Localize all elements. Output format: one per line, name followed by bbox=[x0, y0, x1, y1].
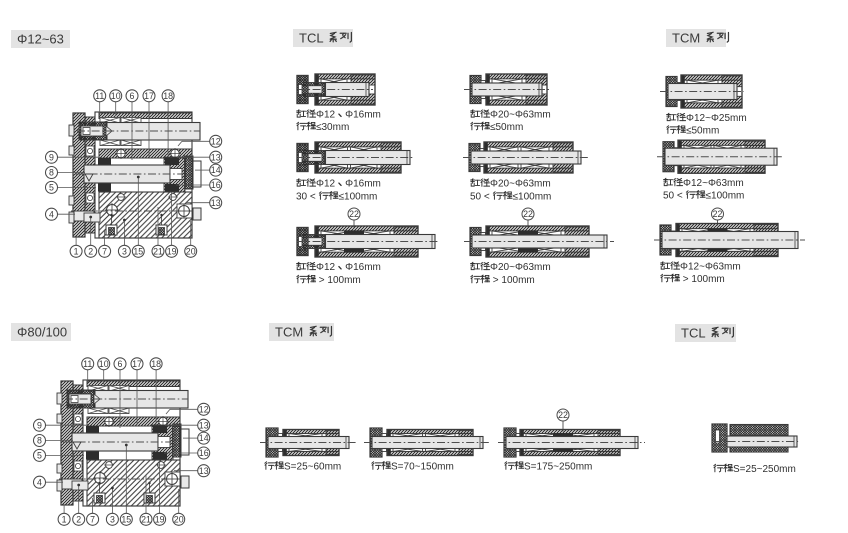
svg-text:4: 4 bbox=[37, 477, 42, 487]
svg-text:2: 2 bbox=[76, 514, 81, 524]
svg-text:13: 13 bbox=[199, 420, 209, 430]
svg-text:14: 14 bbox=[211, 165, 221, 175]
svg-text:8: 8 bbox=[37, 436, 42, 446]
svg-text:4: 4 bbox=[49, 209, 54, 219]
svg-text:Φ80/100: Φ80/100 bbox=[17, 325, 67, 340]
svg-text:12: 12 bbox=[211, 136, 221, 146]
svg-text:10: 10 bbox=[111, 91, 121, 101]
svg-text:> 100mm: > 100mm bbox=[316, 275, 361, 286]
svg-text:Φ20~Φ63mm: Φ20~Φ63mm bbox=[490, 262, 551, 273]
svg-text:15: 15 bbox=[133, 246, 143, 256]
svg-text:6: 6 bbox=[118, 359, 123, 369]
svg-text:18: 18 bbox=[151, 359, 161, 369]
svg-text:20: 20 bbox=[174, 514, 184, 524]
svg-text:> 100mm: > 100mm bbox=[490, 275, 535, 286]
svg-text:16: 16 bbox=[199, 448, 209, 458]
svg-text:22: 22 bbox=[558, 410, 568, 420]
svg-text:11: 11 bbox=[83, 359, 92, 369]
svg-text:5: 5 bbox=[49, 183, 54, 193]
svg-text:6: 6 bbox=[130, 91, 135, 101]
svg-text:Φ16mm: Φ16mm bbox=[345, 262, 381, 273]
svg-text:TCM: TCM bbox=[672, 31, 704, 46]
svg-text:17: 17 bbox=[132, 359, 142, 369]
svg-text:S=70~150mm: S=70~150mm bbox=[391, 462, 454, 473]
svg-text:Φ16mm: Φ16mm bbox=[345, 110, 381, 121]
svg-text:1: 1 bbox=[62, 514, 67, 524]
svg-text:15: 15 bbox=[121, 514, 131, 524]
svg-text:≤100mm: ≤100mm bbox=[339, 192, 378, 203]
svg-text:16: 16 bbox=[211, 180, 221, 190]
svg-text:50 <: 50 < bbox=[470, 192, 493, 203]
svg-text:Φ12~Φ63mm: Φ12~Φ63mm bbox=[680, 262, 741, 273]
svg-text:5: 5 bbox=[37, 451, 42, 461]
svg-text:3: 3 bbox=[122, 246, 127, 256]
svg-text:20: 20 bbox=[186, 246, 196, 256]
svg-text:1: 1 bbox=[74, 246, 79, 256]
svg-text:21: 21 bbox=[153, 246, 163, 256]
svg-text:14: 14 bbox=[199, 433, 209, 443]
svg-text:18: 18 bbox=[163, 91, 173, 101]
svg-text:50 <: 50 < bbox=[663, 191, 686, 202]
svg-text:19: 19 bbox=[167, 246, 177, 256]
svg-text:7: 7 bbox=[90, 514, 95, 524]
svg-text:Φ12~Φ25mm: Φ12~Φ25mm bbox=[686, 113, 747, 124]
svg-text:13: 13 bbox=[211, 152, 221, 162]
svg-text:17: 17 bbox=[144, 91, 154, 101]
svg-text:Φ20~Φ63mm: Φ20~Φ63mm bbox=[490, 179, 551, 190]
svg-text:TCL: TCL bbox=[299, 31, 327, 46]
svg-text:13: 13 bbox=[199, 466, 209, 476]
svg-text:S=175~250mm: S=175~250mm bbox=[524, 462, 592, 473]
svg-text:19: 19 bbox=[155, 514, 165, 524]
svg-text:≤50mm: ≤50mm bbox=[490, 122, 523, 133]
svg-text:3: 3 bbox=[110, 514, 115, 524]
svg-text:22: 22 bbox=[349, 209, 359, 219]
svg-text:9: 9 bbox=[49, 152, 54, 162]
svg-text:13: 13 bbox=[211, 198, 221, 208]
svg-text:Φ20~Φ63mm: Φ20~Φ63mm bbox=[490, 110, 551, 121]
svg-text:22: 22 bbox=[523, 209, 533, 219]
svg-text:≤50mm: ≤50mm bbox=[686, 126, 719, 137]
svg-text:8: 8 bbox=[49, 168, 54, 178]
svg-text:Φ12~63: Φ12~63 bbox=[17, 32, 64, 47]
svg-text:Φ12~Φ63mm: Φ12~Φ63mm bbox=[683, 178, 744, 189]
svg-text:TCM: TCM bbox=[275, 325, 307, 340]
svg-text:≤30mm: ≤30mm bbox=[316, 122, 349, 133]
svg-text:9: 9 bbox=[37, 420, 42, 430]
svg-text:12: 12 bbox=[199, 404, 209, 414]
svg-text:≤100mm: ≤100mm bbox=[513, 192, 552, 203]
svg-text:S=25~60mm: S=25~60mm bbox=[284, 462, 341, 473]
svg-text:30 <: 30 < bbox=[296, 192, 319, 203]
svg-text:10: 10 bbox=[99, 359, 109, 369]
svg-text:≤100mm: ≤100mm bbox=[706, 191, 745, 202]
svg-text:Φ16mm: Φ16mm bbox=[345, 179, 381, 190]
svg-text:Φ12: Φ12 bbox=[316, 110, 336, 121]
svg-text:TCL: TCL bbox=[681, 326, 709, 341]
svg-text:7: 7 bbox=[102, 246, 107, 256]
svg-text:22: 22 bbox=[713, 209, 723, 219]
svg-text:S=25~250mm: S=25~250mm bbox=[733, 464, 796, 475]
svg-text:Φ12: Φ12 bbox=[316, 262, 336, 273]
svg-text:21: 21 bbox=[141, 514, 151, 524]
svg-text:> 100mm: > 100mm bbox=[680, 274, 725, 285]
svg-text:Φ12: Φ12 bbox=[316, 179, 336, 190]
svg-text:11: 11 bbox=[95, 91, 104, 101]
svg-text:2: 2 bbox=[88, 246, 93, 256]
